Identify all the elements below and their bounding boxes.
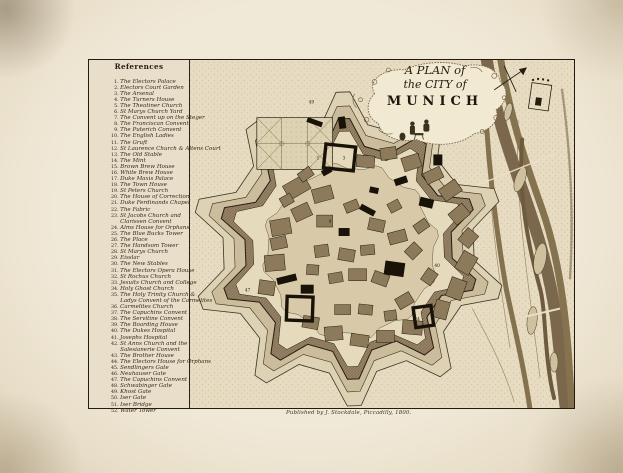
reference-label: The House of Correction: [120, 194, 189, 200]
reference-label: The Brother House: [120, 353, 174, 359]
city-block: [270, 217, 292, 236]
city-block: [350, 333, 369, 347]
reference-label: The Handsom Tower: [120, 243, 178, 249]
city-block: [380, 146, 397, 160]
reference-label: The Convent up on the Steger: [120, 115, 205, 121]
reference-label: The Old Stable: [120, 152, 162, 158]
reference-label: The Fabric: [120, 207, 150, 213]
map-numeral: 9: [329, 220, 332, 225]
city-block: [384, 310, 397, 322]
map-numeral: 24: [414, 318, 420, 323]
reference-label: The Arsenal: [120, 91, 154, 97]
city-block: [360, 244, 375, 255]
reference-label: Electors Court Garden: [120, 85, 184, 91]
map-numeral: 1: [317, 156, 320, 161]
reference-label: St Marys Church Yard: [120, 109, 182, 115]
reference-label: The Capuchins Convent: [120, 377, 187, 383]
reference-label: Duke Ferdinands Chapel: [120, 200, 190, 206]
reference-label: Josephs Hospital: [120, 335, 167, 341]
reference-label: Holy Ghost Church: [120, 286, 174, 292]
reference-label: The Town House: [120, 182, 167, 188]
reference-label: The Capuchins Convent: [120, 310, 187, 316]
city-block: [314, 244, 329, 258]
reference-label: St Marys Church: [120, 249, 168, 255]
reference-label: Brown Brew House: [120, 164, 175, 170]
landmark-building: [301, 285, 314, 294]
reference-label: The Turners House: [120, 97, 174, 103]
landmark-building: [339, 228, 350, 236]
city-block: [258, 280, 276, 296]
reference-label: St Rochus Church: [120, 274, 171, 280]
map-numeral: 49: [309, 101, 315, 106]
map-numeral: 47: [245, 289, 251, 294]
city-block: [377, 330, 395, 342]
reference-label: Water Tower: [120, 408, 156, 414]
reference-label: Eisslar: [120, 255, 139, 261]
map-plate: 13940244749 References 1.The Electors Pa…: [88, 59, 575, 409]
reference-label: The Franciscan Convent: [120, 121, 189, 127]
reference-label: The Puterich Convent: [120, 127, 181, 133]
landmark-building: [384, 261, 406, 278]
reference-label: The Place: [120, 237, 148, 243]
city-block: [338, 248, 356, 263]
references-list: 1.The Electors Palace 2.Electors Court G…: [93, 73, 189, 408]
reference-label: The Theatiner Church: [120, 103, 182, 109]
reference-label: St Laurence Church & Altens Court: [120, 146, 221, 152]
city-block: [306, 264, 319, 275]
reference-label: Iser Gate: [120, 395, 146, 401]
reference-label: The New Stables: [120, 261, 168, 267]
reference-label: White Brew House: [120, 170, 173, 176]
publisher-imprint: Published by J. Stockdale, Piccadilly, 1…: [286, 410, 412, 416]
city-block: [335, 305, 351, 315]
reference-label: The Electors Opera House: [120, 268, 194, 274]
reference-label: The Electors Palace: [120, 79, 176, 85]
reference-label: Khost Gate: [120, 389, 151, 395]
reference-label: The Dukes Hospital: [120, 328, 175, 334]
reference-label: Salesianerie Convent: [120, 347, 180, 353]
reference-label: St Anns Church and the: [120, 341, 187, 347]
reference-label: The Gruft: [120, 140, 147, 146]
map-area: 13940244749: [189, 60, 574, 408]
reference-label: The Blue Bucks Tower: [120, 231, 183, 237]
reference-label: Alms House for Orphans: [120, 225, 189, 231]
reference-label: Clarissen Convent: [120, 219, 171, 225]
city-block: [328, 272, 343, 284]
city-block: [264, 254, 285, 272]
map-numeral: 40: [434, 264, 440, 269]
landmark-building: [433, 154, 442, 165]
reference-label: Carmelites Church: [120, 304, 173, 310]
references-panel: References 1.The Electors Palace 2.Elect…: [89, 60, 189, 408]
reference-label: Ladys Convent of the Carmelites: [120, 298, 212, 304]
reference-label: The Servitine Convent: [120, 316, 183, 322]
reference-label: The Mint: [120, 158, 146, 164]
reference-label: Jesuits Church and College: [120, 280, 196, 286]
reference-label: The Electors House for Orphans: [120, 359, 211, 365]
reference-label: Schwabinger Gate: [120, 383, 172, 389]
munich-map-drawing: 13940244749: [189, 60, 574, 408]
reference-label: St Peters Church: [120, 188, 168, 194]
city-block: [356, 155, 375, 168]
reference-label: Neuhauser Gate: [120, 371, 166, 377]
map-numeral: 3: [343, 156, 346, 161]
reference-label: Iser Bridge: [120, 402, 152, 408]
engraved-map-page: 13940244749 References 1.The Electors Pa…: [0, 0, 623, 473]
city-block: [324, 326, 343, 341]
reference-label: The Holy Trinity Church &: [120, 292, 195, 298]
reference-number: 52.: [111, 409, 119, 415]
city-block: [358, 304, 373, 315]
reference-label: The English Ladies: [120, 133, 174, 139]
reference-label: Sendlingers Gate: [120, 365, 169, 371]
reference-label: St Jacobs Church and: [120, 213, 181, 219]
city-block: [349, 269, 367, 281]
reference-label: The Boarding House: [120, 322, 178, 328]
references-header: References: [93, 62, 185, 71]
references-divider-line: [189, 60, 190, 408]
reference-label: Duke Maxis Palace: [120, 176, 173, 182]
